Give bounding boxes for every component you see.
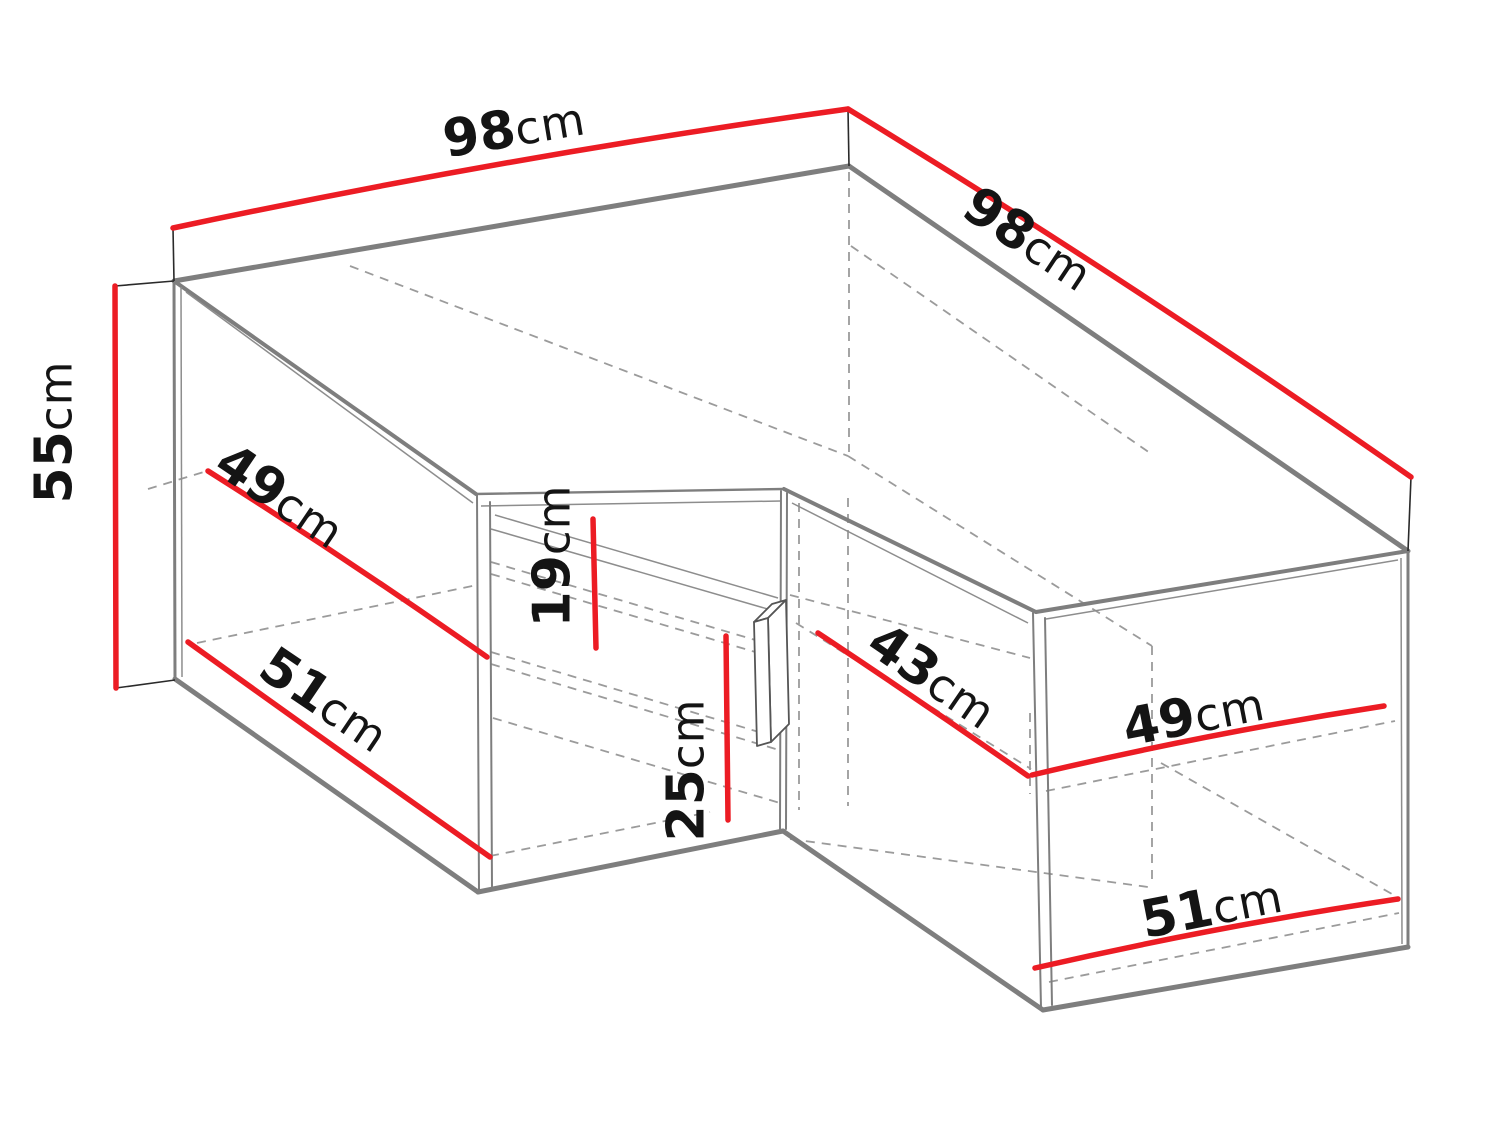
diagram-canvas: 98cm 98cm 55cm 49cm 51cm 19cm 25cm 43cm … — [0, 0, 1500, 1124]
top-back-right-edge — [849, 166, 1408, 551]
dimension-label-55: 55cm — [25, 361, 85, 504]
bottom-front-left-edge — [478, 831, 783, 892]
dimension-label-49-right: 49cm — [1118, 673, 1270, 759]
top-right-end-edge — [1036, 551, 1408, 612]
dimension-line-98-right — [848, 109, 1411, 477]
witness-line — [173, 228, 174, 281]
hidden-edge — [790, 839, 1148, 887]
dimension-label-98-left: 98cm — [439, 87, 590, 170]
hidden-edge — [491, 664, 779, 750]
left-front-vertical-edge — [490, 502, 492, 888]
left-front-vertical-edge — [477, 495, 479, 891]
door-handle — [754, 600, 789, 746]
top-panel-inner-edge — [481, 501, 781, 506]
witness-line — [848, 109, 849, 166]
right-end-vertical-inner — [1401, 558, 1402, 944]
hidden-edge — [851, 246, 1150, 453]
bottom-front-right-edge — [783, 831, 1043, 1010]
hidden-edge — [350, 266, 848, 456]
hidden-edge — [148, 471, 207, 489]
dimension-line-55 — [115, 286, 116, 688]
cabinet-dimension-diagram: 98cm 98cm 55cm 49cm 51cm 19cm 25cm 43cm … — [0, 0, 1500, 1124]
left-end-vertical-inner — [181, 287, 182, 677]
top-front-left-edge — [475, 489, 784, 494]
top-back-left-edge — [174, 166, 849, 281]
witness-line — [115, 281, 174, 286]
dimension-label-51-right: 51cm — [1136, 865, 1288, 951]
top-panel-inner-edge — [1046, 560, 1398, 619]
dimension-label-25: 25cm — [657, 699, 717, 842]
door-handle-front — [754, 618, 771, 746]
hidden-edges — [148, 172, 1399, 982]
hidden-edge — [197, 585, 477, 643]
front-corner-vertical-edge — [1045, 618, 1052, 1005]
dimension-label-19: 19cm — [523, 485, 583, 628]
hidden-edge — [493, 718, 780, 803]
front-corner-vertical-edge — [1033, 613, 1041, 1008]
witness-line — [1408, 477, 1411, 551]
left-end-vertical-edge — [174, 281, 175, 679]
dimension-label-49-left: 49cm — [204, 432, 356, 562]
dimension-label-98-right: 98cm — [952, 175, 1104, 304]
witness-line — [116, 680, 175, 688]
hidden-edge — [491, 652, 779, 738]
witness-lines — [115, 109, 1411, 688]
dimension-line-19 — [593, 519, 596, 648]
dimension-line-25 — [726, 636, 728, 820]
